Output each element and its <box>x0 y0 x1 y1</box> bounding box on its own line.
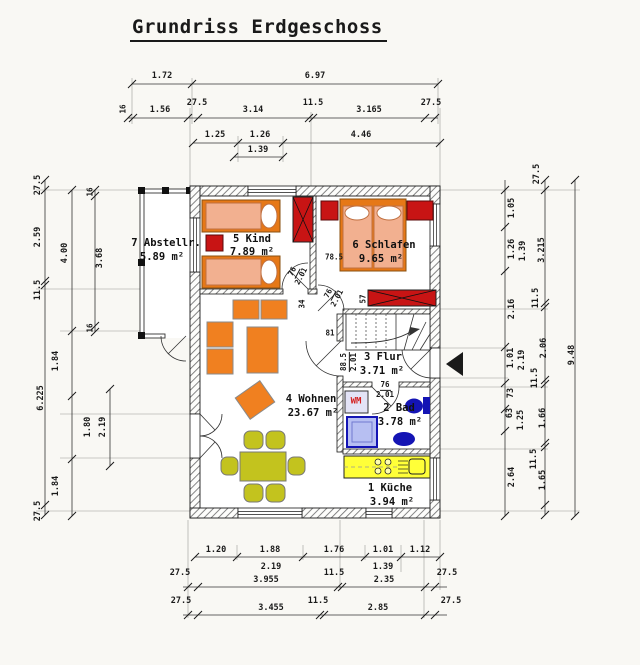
dim-label: 1.26 <box>250 131 270 140</box>
dim-label: 2.85 <box>368 604 388 613</box>
dim-label: 1.01 <box>507 348 516 368</box>
room-area-schlafen: 9.65 m² <box>359 254 403 265</box>
dim-label: 1.26 <box>508 239 517 259</box>
dim-label: 27.5 <box>34 175 43 195</box>
dim-label: 3.455 <box>258 604 284 613</box>
dim-label: 78.5 <box>325 253 343 261</box>
dim-label: 1.39 <box>519 241 528 261</box>
dim-label: 1.05 <box>508 198 517 218</box>
dim-label: 1.84 <box>52 476 61 496</box>
dim-label: 4.00 <box>61 243 70 263</box>
room-label-flur: 3 Flur <box>364 352 402 363</box>
dim-label: 2.19 <box>261 563 281 572</box>
dim-label: 27.5 <box>34 501 43 521</box>
page-title: Grundriss Erdgeschoss <box>130 16 387 42</box>
dim-label: 2.19 <box>518 350 527 370</box>
room-label-bad: 2 Bad <box>383 403 415 414</box>
dim-label: 81 <box>325 329 334 337</box>
dim-label: 1.66 <box>539 408 548 428</box>
dim-label: 3.215 <box>538 237 547 263</box>
dim-label: 1.20 <box>206 546 226 555</box>
door-height-label: 2.01 <box>376 391 394 400</box>
dim-label: 6.225 <box>37 385 46 411</box>
dim-label: 1.76 <box>324 546 344 555</box>
room-area-kueche: 3.94 m² <box>370 497 414 508</box>
door-height-label: 2.01 <box>350 353 359 371</box>
dim-label: 1.56 <box>150 106 170 115</box>
dim-label: 1.72 <box>152 72 172 81</box>
kitchen-fixtures <box>344 456 430 478</box>
dim-label: 3.955 <box>253 576 279 585</box>
dim-label: 3.68 <box>96 248 105 268</box>
dim-label: 1.80 <box>84 417 93 437</box>
room-label-schlafen: 6 Schlafen <box>352 240 415 251</box>
room-area-kind: 7.89 m² <box>230 247 274 258</box>
entrance-arrow <box>446 352 463 376</box>
dim-label: 27.5 <box>441 597 461 606</box>
dim-label: 2.06 <box>540 338 549 358</box>
room-label-kueche: 1 Küche <box>368 483 412 494</box>
dim-label: 1.39 <box>248 146 268 155</box>
room-area-bad: 3.78 m² <box>378 417 422 428</box>
dim-label: 11.5 <box>531 368 540 388</box>
dim-label: 1.01 <box>373 546 393 555</box>
dim-label: 16 <box>119 104 127 113</box>
dim-label: 2.64 <box>508 467 517 487</box>
door-dim-wohnen: 88.5 2.01 <box>340 352 358 372</box>
dim-label: 4.46 <box>351 131 371 140</box>
room-area-flur: 3.71 m² <box>360 366 404 377</box>
floor-plan-page: Grundriss Erdgeschoss 1.72 6.97 16 1.56 … <box>0 0 640 665</box>
dim-label: 57 <box>359 294 367 303</box>
dim-label: 27.5 <box>421 99 441 108</box>
dim-label: 2.59 <box>34 227 43 247</box>
room-label-abstell: 7 Abstellr. <box>131 238 201 249</box>
dim-label: 9.48 <box>568 345 577 365</box>
dim-label: 27.5 <box>170 569 190 578</box>
dim-label: 73 <box>507 388 516 398</box>
room-label-kind: 5 Kind <box>233 234 271 245</box>
dim-label: 1.25 <box>205 131 225 140</box>
dim-label: 6.97 <box>305 72 325 81</box>
dim-label: 27.5 <box>533 164 542 184</box>
dim-label: 1.88 <box>260 546 280 555</box>
dim-label: 1.39 <box>373 563 393 572</box>
dim-label: 27.5 <box>171 597 191 606</box>
dim-label: 2.16 <box>508 299 517 319</box>
dim-label: 11.5 <box>308 597 328 606</box>
dim-label: 27.5 <box>437 569 457 578</box>
room-area-wohnen: 23.67 m² <box>288 408 339 419</box>
dim-label: 11.5 <box>324 569 344 578</box>
dim-label: 3.165 <box>356 106 382 115</box>
dim-label: 27.5 <box>187 99 207 108</box>
washing-machine-label: WM <box>351 398 362 407</box>
dim-label: 16 <box>86 187 94 196</box>
dim-label: 1.12 <box>410 546 430 555</box>
dim-label: 2.19 <box>99 417 108 437</box>
dim-label: 11.5 <box>532 288 541 308</box>
dim-label: 3.14 <box>243 106 263 115</box>
dim-label: 11.5 <box>530 449 539 469</box>
dim-label: 11.5 <box>34 280 43 300</box>
dim-label: 2.35 <box>374 576 394 585</box>
door-dim-bad: 76 2.01 <box>376 381 394 399</box>
room-area-abstell: 5.89 m² <box>140 252 184 263</box>
dim-label: 1.25 <box>517 410 526 430</box>
dim-label: 63 <box>506 408 515 418</box>
dim-label: 1.84 <box>52 351 61 371</box>
staircase <box>346 314 430 350</box>
dim-label: 16 <box>86 323 94 332</box>
dim-label: 1.65 <box>539 470 548 490</box>
dim-label: 11.5 <box>303 99 323 108</box>
dim-label: 34 <box>298 299 306 308</box>
room-label-wohnen: 4 Wohnen <box>286 394 337 405</box>
